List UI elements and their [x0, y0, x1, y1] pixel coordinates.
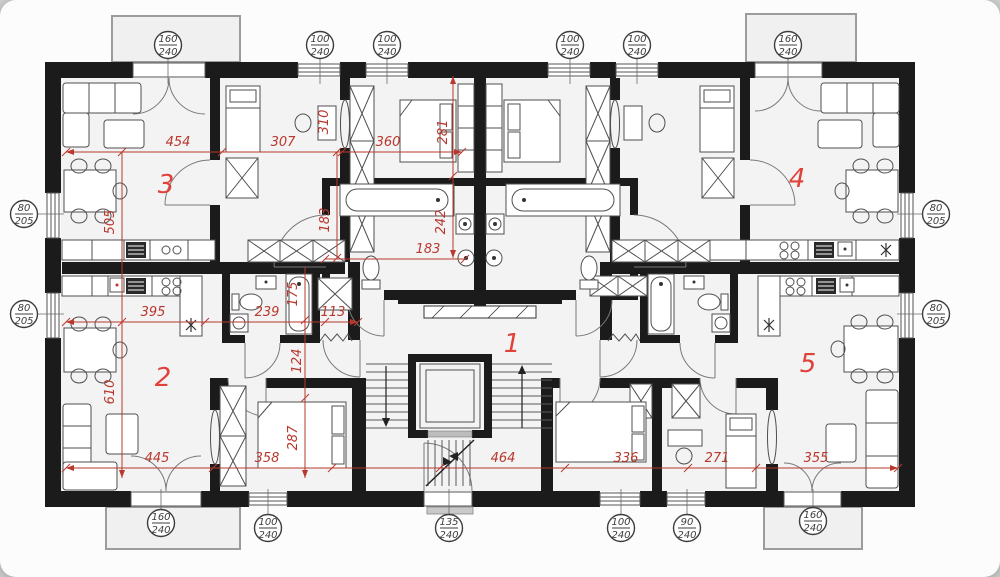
sofa	[866, 390, 898, 488]
toilet	[581, 256, 597, 280]
svg-text:240: 240	[258, 530, 277, 541]
svg-text:240: 240	[803, 523, 822, 534]
svg-text:205: 205	[926, 316, 945, 327]
dining-table	[844, 326, 898, 372]
svg-text:100: 100	[627, 34, 646, 45]
svg-text:240: 240	[310, 47, 329, 58]
svg-text:240: 240	[677, 530, 696, 541]
dimension-value: 281	[436, 120, 451, 145]
svg-text:160: 160	[803, 510, 822, 521]
coffee-table	[818, 120, 862, 148]
dimension-value: 355	[804, 451, 829, 466]
sofa	[821, 83, 899, 113]
svg-text:100: 100	[310, 34, 329, 45]
svg-text:135: 135	[439, 517, 458, 528]
svg-text:80: 80	[930, 203, 943, 214]
dining-table	[64, 170, 116, 212]
dimension-value: 610	[103, 380, 118, 405]
coffee-table	[104, 120, 144, 148]
svg-text:205: 205	[14, 316, 33, 327]
sofa	[63, 83, 141, 113]
svg-text:240: 240	[778, 47, 797, 58]
svg-text:240: 240	[158, 47, 177, 58]
svg-text:240: 240	[377, 47, 396, 58]
dimension-value: 242	[434, 210, 449, 235]
dimension-value: 505	[103, 210, 118, 235]
dimension-value: 464	[491, 451, 516, 466]
svg-text:80: 80	[930, 303, 943, 314]
svg-text:160: 160	[778, 34, 797, 45]
room-number: 4	[789, 164, 806, 194]
entrance-threshold	[427, 507, 473, 514]
svg-text:100: 100	[611, 517, 630, 528]
room-number: 1	[504, 329, 521, 359]
desk	[668, 430, 702, 446]
dimension-value: 360	[376, 135, 401, 150]
svg-text:205: 205	[926, 216, 945, 227]
dimension-value: 445	[145, 451, 170, 466]
dimension-value: 395	[141, 305, 166, 320]
dimension-value: 336	[614, 451, 639, 466]
svg-text:160: 160	[158, 34, 177, 45]
sofa	[63, 404, 91, 470]
svg-text:240: 240	[439, 530, 458, 541]
svg-text:160: 160	[151, 512, 170, 523]
dimension-value: 310	[317, 110, 332, 135]
page-card: 4543073602813105051832421833952391131751…	[0, 0, 1000, 577]
dimension-value: 307	[271, 135, 297, 150]
room-number: 2	[155, 363, 172, 393]
toilet	[363, 256, 379, 280]
coffee-table	[826, 424, 856, 462]
dimension-value: 271	[705, 451, 730, 466]
floor-plan: 4543073602813105051832421833952391131751…	[0, 0, 1000, 577]
svg-text:100: 100	[258, 517, 277, 528]
svg-text:80: 80	[18, 303, 31, 314]
dining-table	[846, 170, 898, 212]
elevator-door	[428, 431, 472, 437]
svg-text:90: 90	[681, 517, 694, 528]
dimension-value: 239	[255, 305, 280, 320]
svg-text:80: 80	[18, 203, 31, 214]
dining-table	[64, 328, 116, 372]
dimension-value: 454	[166, 135, 191, 150]
svg-text:240: 240	[560, 47, 579, 58]
desk	[624, 106, 642, 140]
room-number: 5	[800, 349, 817, 379]
room-number: 3	[158, 170, 175, 200]
svg-text:100: 100	[377, 34, 396, 45]
dimension-value: 287	[286, 425, 301, 451]
dimension-value: 183	[416, 242, 441, 257]
toilet	[698, 294, 720, 310]
dimension-value: 124	[290, 349, 305, 374]
svg-text:240: 240	[151, 525, 170, 536]
svg-text:205: 205	[14, 216, 33, 227]
dimension-value: 183	[318, 208, 333, 233]
dimension-value: 113	[321, 305, 346, 320]
dimension-value: 358	[255, 451, 280, 466]
dimension-value: 175	[286, 282, 301, 307]
svg-text:240: 240	[611, 530, 630, 541]
svg-text:240: 240	[627, 47, 646, 58]
svg-text:100: 100	[560, 34, 579, 45]
